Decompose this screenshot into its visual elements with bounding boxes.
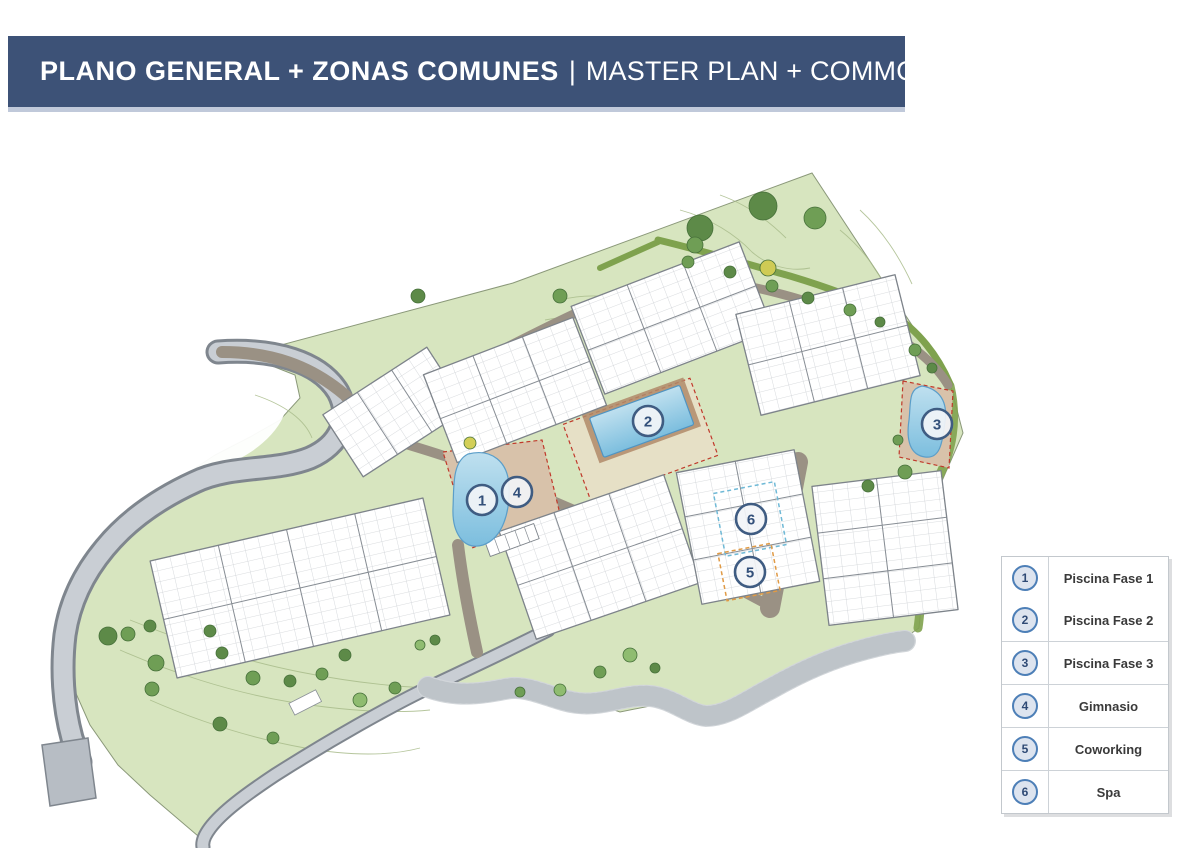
marker-piscina-fase-3: 3 xyxy=(922,409,952,439)
legend-label: Piscina Fase 3 xyxy=(1049,656,1168,671)
legend-circle-1: 1 xyxy=(1012,565,1038,591)
svg-text:1: 1 xyxy=(478,493,486,510)
slide: PLANO GENERAL + ZONAS COMUNES | MASTER P… xyxy=(0,0,1200,848)
legend-circle-3: 3 xyxy=(1012,650,1038,676)
svg-text:6: 6 xyxy=(747,512,755,529)
legend-number-cell: 2 xyxy=(1002,599,1049,641)
legend-number-cell: 3 xyxy=(1002,642,1049,684)
legend-circle-2: 2 xyxy=(1012,607,1038,633)
legend-circle-5: 5 xyxy=(1012,736,1038,762)
legend-label: Coworking xyxy=(1049,742,1168,757)
svg-text:4: 4 xyxy=(513,485,522,502)
legend-row-piscina-fase-2: 2 Piscina Fase 2 xyxy=(1002,599,1168,641)
legend-table: 1 Piscina Fase 1 2 Piscina Fase 2 3 Pisc… xyxy=(1001,556,1169,814)
legend-number-cell: 4 xyxy=(1002,685,1049,727)
legend-row-gimnasio: 4 Gimnasio xyxy=(1002,684,1168,727)
legend-number-cell: 6 xyxy=(1002,771,1049,813)
marker-spa: 6 xyxy=(736,504,766,534)
legend-circle-4: 4 xyxy=(1012,693,1038,719)
legend-row-coworking: 5 Coworking xyxy=(1002,727,1168,770)
legend-circle-6: 6 xyxy=(1012,779,1038,805)
legend-row-spa: 6 Spa xyxy=(1002,770,1168,813)
legend-label: Piscina Fase 2 xyxy=(1049,613,1168,628)
legend-number-cell: 1 xyxy=(1002,557,1049,599)
marker-gimnasio: 4 xyxy=(502,477,532,507)
legend-label: Gimnasio xyxy=(1049,699,1168,714)
legend-row-piscina-fase-3: 3 Piscina Fase 3 xyxy=(1002,641,1168,684)
svg-text:5: 5 xyxy=(746,565,754,582)
legend-row-piscina-fase-1: 1 Piscina Fase 1 xyxy=(1002,557,1168,599)
legend-number-cell: 5 xyxy=(1002,728,1049,770)
legend-label: Piscina Fase 1 xyxy=(1049,571,1168,586)
legend-label: Spa xyxy=(1049,785,1168,800)
marker-coworking: 5 xyxy=(735,557,765,587)
svg-text:3: 3 xyxy=(933,417,941,434)
marker-piscina-fase-2: 2 xyxy=(633,406,663,436)
marker-piscina-fase-1: 1 xyxy=(467,485,497,515)
svg-text:2: 2 xyxy=(644,414,652,431)
